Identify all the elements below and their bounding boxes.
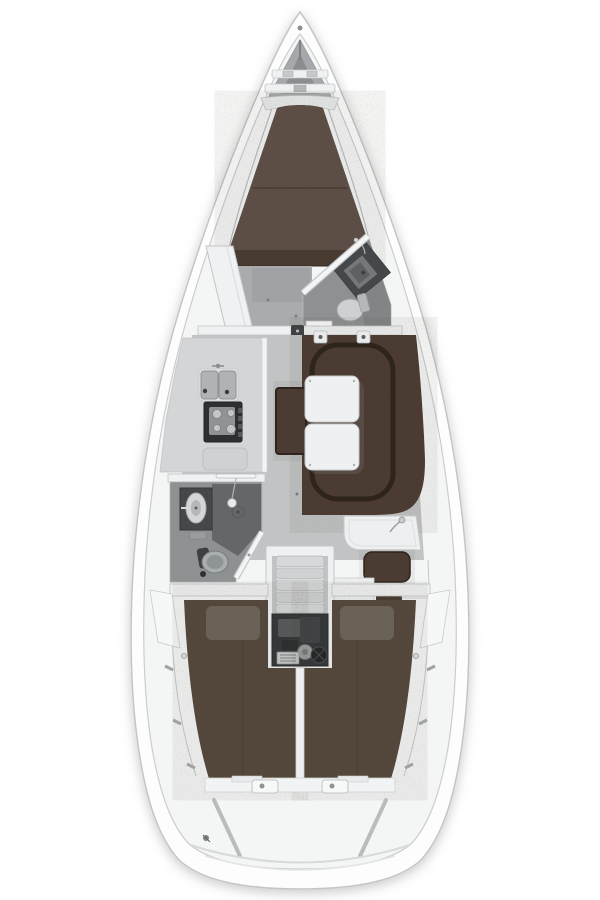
locker-latch-1	[283, 72, 293, 77]
step	[276, 604, 324, 613]
latch-dot	[260, 784, 265, 789]
engine-compartment	[272, 614, 328, 666]
table-screw	[309, 464, 311, 466]
step	[276, 592, 324, 603]
transom-latch	[322, 780, 348, 793]
filter-center	[302, 649, 308, 655]
counter-knob	[203, 389, 207, 393]
berth-divider	[296, 668, 304, 784]
cabinet-vent	[190, 532, 206, 539]
transom-latch	[252, 780, 278, 793]
starboard-berth-headboard	[332, 584, 430, 596]
port-berth-headboard	[170, 584, 268, 596]
stove-knob	[238, 408, 242, 413]
counter-edge-trim	[262, 338, 267, 472]
step	[276, 568, 324, 579]
desk-lamp	[399, 517, 405, 523]
saloon-table	[305, 376, 364, 474]
burner	[228, 410, 235, 417]
port-berth-pillow	[206, 606, 260, 640]
galley-sink-right	[219, 371, 236, 399]
shower-head-icon	[228, 499, 237, 508]
latch-dot	[319, 335, 323, 339]
burner	[213, 410, 222, 419]
nav-seat	[364, 552, 410, 582]
latch-dot	[362, 335, 366, 339]
yacht-floor-plan	[0, 0, 600, 900]
door-hinge	[248, 554, 251, 557]
locker-hatch	[294, 86, 306, 92]
table-leaf-fore	[305, 376, 359, 422]
starboard-berth-pillow	[340, 606, 394, 640]
toilet-seat	[207, 555, 224, 569]
bench-cushion	[276, 388, 306, 454]
table-screw	[309, 380, 311, 382]
companionway	[266, 546, 334, 670]
saloon-bench	[276, 388, 306, 454]
locker-shelf-1	[272, 70, 328, 78]
stove-knob	[238, 424, 242, 429]
bow-fitting	[298, 26, 303, 31]
floor-dot	[267, 299, 270, 302]
burner	[214, 425, 221, 432]
latch-dot	[330, 784, 335, 789]
table-leaf-aft	[305, 424, 359, 470]
step	[276, 556, 324, 567]
table-screw	[353, 380, 355, 382]
counter-hatch	[203, 448, 247, 470]
toilet-pump	[200, 571, 206, 577]
locker-hook	[414, 654, 419, 659]
handle-dot	[296, 330, 299, 333]
forward-floor-hatch	[252, 268, 310, 302]
stove-knob	[238, 432, 242, 437]
step	[276, 580, 324, 591]
stove-knob	[238, 416, 242, 421]
locker-latch-2	[307, 72, 317, 77]
towel-bar	[216, 474, 256, 478]
galley-sink-left	[201, 371, 218, 399]
basin-drain	[195, 507, 198, 510]
floor-dot	[295, 315, 298, 318]
floor-plan-canvas	[0, 0, 600, 900]
engine-manifold	[300, 617, 320, 643]
anchor-locker	[261, 40, 339, 110]
burner	[227, 425, 236, 434]
engine-part	[282, 640, 298, 650]
counter-knob	[225, 390, 229, 394]
floor-dot	[296, 493, 299, 496]
locker-hook	[182, 654, 187, 659]
drain-dot	[237, 511, 240, 514]
table-screw	[353, 464, 355, 466]
faucet-base	[216, 364, 220, 368]
